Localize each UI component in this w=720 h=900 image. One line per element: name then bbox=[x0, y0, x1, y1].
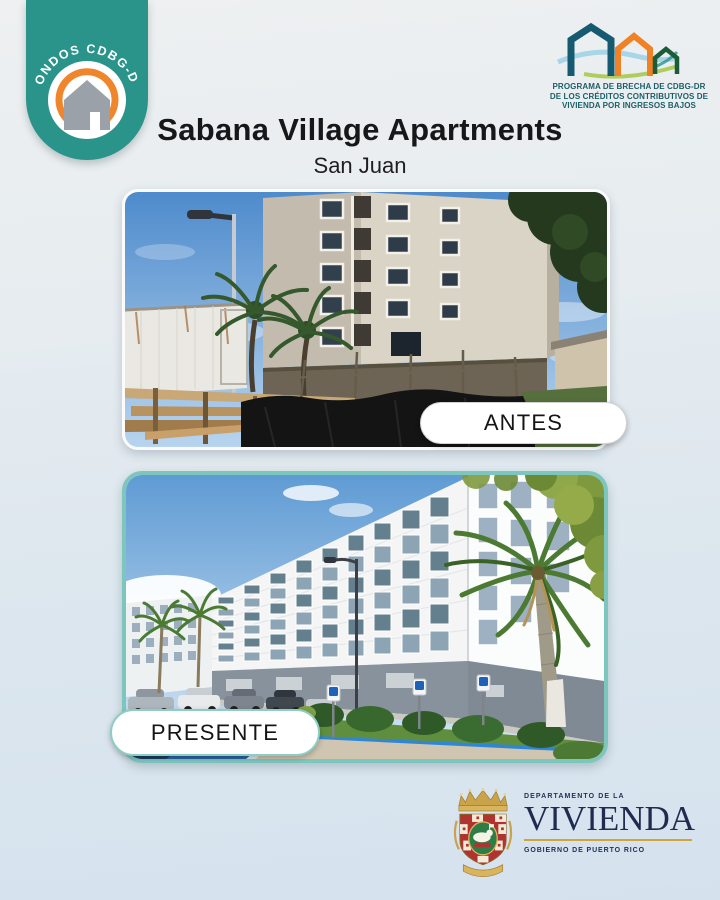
program-logo-line3: VIVIENDA POR INGRESOS BAJOS bbox=[534, 101, 720, 111]
before-label-text: ANTES bbox=[484, 410, 563, 436]
department-logo: DEPARTAMENTO DE LA VIVIENDA GOBIERNO DE … bbox=[450, 788, 706, 880]
poster: FONDOS CDBG-DR PROGRAMA DE BRECHA DE CDB… bbox=[0, 0, 720, 900]
department-text: DEPARTAMENTO DE LA VIVIENDA GOBIERNO DE … bbox=[524, 793, 700, 854]
puerto-rico-crest-icon bbox=[450, 788, 516, 880]
houses-icon bbox=[556, 22, 680, 80]
gold-divider bbox=[524, 839, 692, 841]
program-logo-line2: DE LOS CRÉDITOS CONTRIBUTIVOS DE bbox=[534, 92, 720, 102]
after-label-text: PRESENTE bbox=[151, 720, 279, 746]
before-label-pill: ANTES bbox=[420, 402, 627, 444]
department-line-bottom: GOBIERNO DE PUERTO RICO bbox=[524, 847, 700, 854]
page-title: Sabana Village Apartments bbox=[0, 112, 720, 148]
page-subtitle: San Juan bbox=[0, 153, 720, 179]
program-logo: PROGRAMA DE BRECHA DE CDBG-DR DE LOS CRÉ… bbox=[534, 22, 720, 111]
program-logo-line1: PROGRAMA DE BRECHA DE CDBG-DR bbox=[534, 82, 720, 92]
department-name: VIVIENDA bbox=[524, 801, 700, 837]
after-label-pill: PRESENTE bbox=[110, 709, 320, 756]
